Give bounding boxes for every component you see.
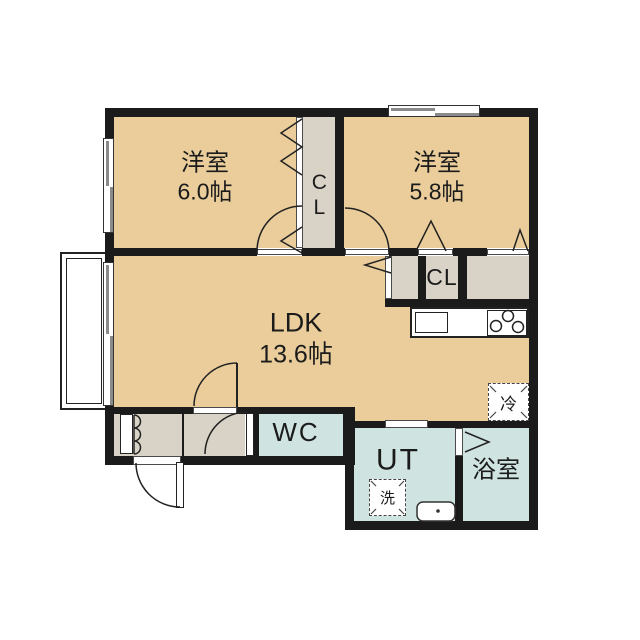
entry-cabinet [120,414,133,454]
room-west1-area: 6.0帖 [178,178,233,206]
storage-left-folding-door [385,256,392,299]
closet-right-label: CL [426,263,457,291]
wc-door-leaf [246,413,254,456]
wall-left-1 [105,108,114,138]
washer-space: 洗 [369,479,406,516]
wall-top-left [105,108,388,117]
room-label-west2: 洋室 5.8帖 [410,148,465,205]
room-west2-name: 洋室 [410,148,465,177]
window-sash [110,336,113,405]
doorway-storage-right [487,249,529,255]
wall-storage-row-bottom [385,299,529,307]
doorway-ut-bath [455,428,463,456]
window-sash [391,108,435,111]
wall-rooms-ldk-4 [453,248,487,256]
window-west1 [103,138,114,233]
doorway-closet-right [418,249,453,255]
wall-storage-sep-1 [418,256,426,299]
wall-bottom-left-1 [105,456,133,465]
wall-ut-left [345,421,354,530]
wall-hall-wc [254,413,259,456]
wall-ut-top-1 [345,421,385,428]
ldk-label: LDK 13.6帖 [259,306,333,369]
doorway-west2 [345,249,389,255]
room-west1-name: 洋室 [178,148,233,177]
wall-right [529,108,538,530]
wall-genkan-divider [182,414,184,456]
window-ldk-balcony [103,262,114,406]
window-sash [106,141,109,186]
wall-rooms-ldk-1 [105,248,257,256]
window-sash [110,187,113,232]
entry-hall-floor [114,414,245,456]
wall-bottom-right [345,521,538,530]
washer-label: 洗 [380,487,395,508]
fridge-space: 冷 [488,383,529,421]
ldk-floor-left [114,256,385,407]
window-west2 [388,105,480,117]
ut-label: UT [376,443,420,480]
wall-hall-ldk-1 [114,407,193,414]
entrance-door-leaf [176,462,184,508]
wall-ut-bath [455,456,463,521]
kitchen-stove [487,310,527,336]
room-west2-area: 5.8帖 [410,178,465,206]
window-sash [106,265,109,334]
wall-storage-sep-2 [458,256,467,299]
ldk-name: LDK [259,306,333,339]
storage-compartment-right [467,256,529,299]
doorway-ldk-hall [193,407,237,414]
doorway-entrance [133,456,181,465]
balcony-inner-line [66,258,102,404]
floor-plan: 冷 洗 [0,0,640,640]
kitchen-sink [415,312,448,333]
closet-top-label: CL [306,171,332,221]
wall-ut-top-2 [428,421,529,428]
fridge-label: 冷 [500,390,517,415]
room-label-west1: 洋室 6.0帖 [178,148,233,205]
window-sash [435,113,479,116]
doorway-ldk-ut [385,420,428,428]
closet-top-folding-door [296,117,303,248]
wc-label: WC [272,417,319,449]
doorway-west1 [257,249,302,255]
wall-bottom-left-2 [181,456,345,465]
wall-closet-top-right [335,115,344,256]
wall-rooms-ldk-3 [389,248,418,256]
door-swing-entrance-icon [136,463,180,507]
ldk-area: 13.6帖 [259,339,333,370]
bath-label: 浴室 [472,455,520,484]
storage-compartment-left [392,256,418,299]
